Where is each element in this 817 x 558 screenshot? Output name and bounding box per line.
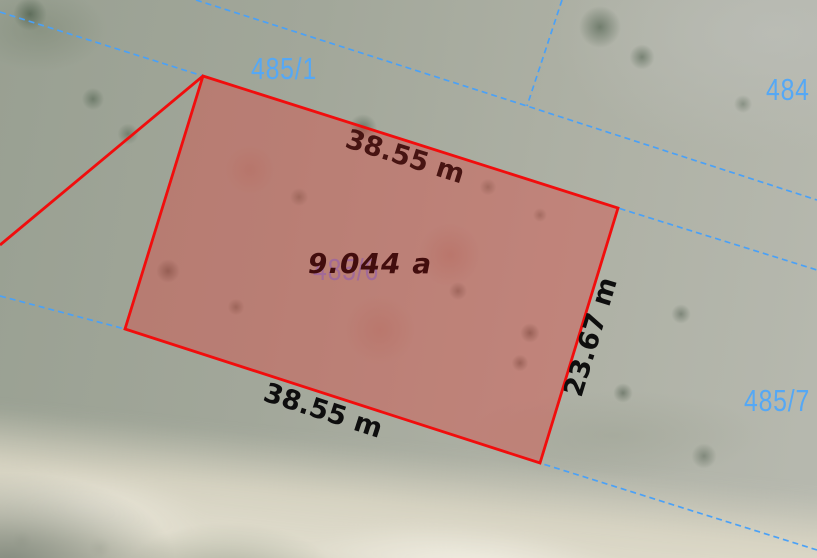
map-viewport[interactable]: 485/6 485/1 484 485/7 38.55 m 38.55 m 23… (0, 0, 817, 558)
area-label: 9.044 a (308, 250, 432, 278)
cadastral-line-cross (527, 0, 562, 106)
parcel-label-484: 484 (766, 74, 810, 105)
parcel-label-485-1: 485/1 (251, 53, 317, 84)
parcel-label-485-7: 485/7 (744, 385, 810, 416)
